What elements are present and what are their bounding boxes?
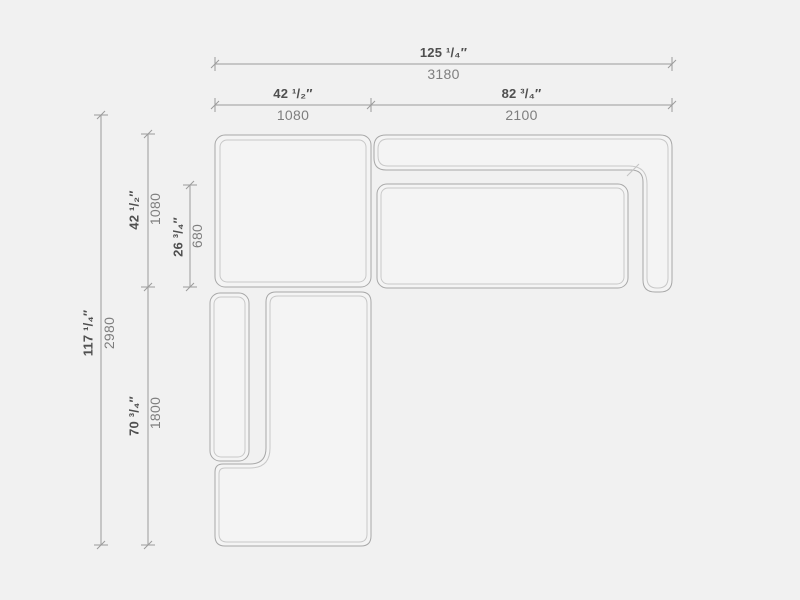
dim-label-left-width-inches: 42 ¹/₂″ (215, 86, 371, 101)
drawing-canvas: 125 ¹/₄″ 3180 42 ¹/₂″ 1080 82 ³/₄″ 2100 … (0, 0, 800, 600)
dim-label-total-width-inches: 125 ¹/₄″ (215, 45, 672, 60)
dim-label-total-depth-inches: 117 ¹/₄″ (81, 310, 96, 357)
dim-label-total-width-mm: 3180 (215, 66, 672, 82)
dim-label-right-width-mm: 2100 (371, 107, 672, 123)
dim-label-left-width-mm: 1080 (215, 107, 371, 123)
dim-label-right-width-inches: 82 ³/₄″ (371, 86, 672, 101)
sofa-plan (210, 135, 672, 546)
dimension-lines (94, 57, 676, 549)
dim-label-seat-depth-inches: 26 ³/₄″ (171, 217, 186, 257)
corner-seat-module (215, 135, 371, 287)
right-sofa-seat-cushion (377, 184, 628, 288)
dim-label-seat-depth-mm: 680 (189, 224, 205, 248)
dim-label-upper-depth-mm: 1080 (147, 193, 163, 225)
dim-label-lower-depth-inches: 70 ³/₄″ (127, 396, 142, 436)
dim-label-upper-depth-inches: 42 ¹/₂″ (127, 190, 142, 229)
chaise-arm-cushion (210, 293, 249, 461)
dim-label-total-depth-mm: 2980 (101, 317, 117, 349)
dim-label-lower-depth-mm: 1800 (147, 397, 163, 429)
